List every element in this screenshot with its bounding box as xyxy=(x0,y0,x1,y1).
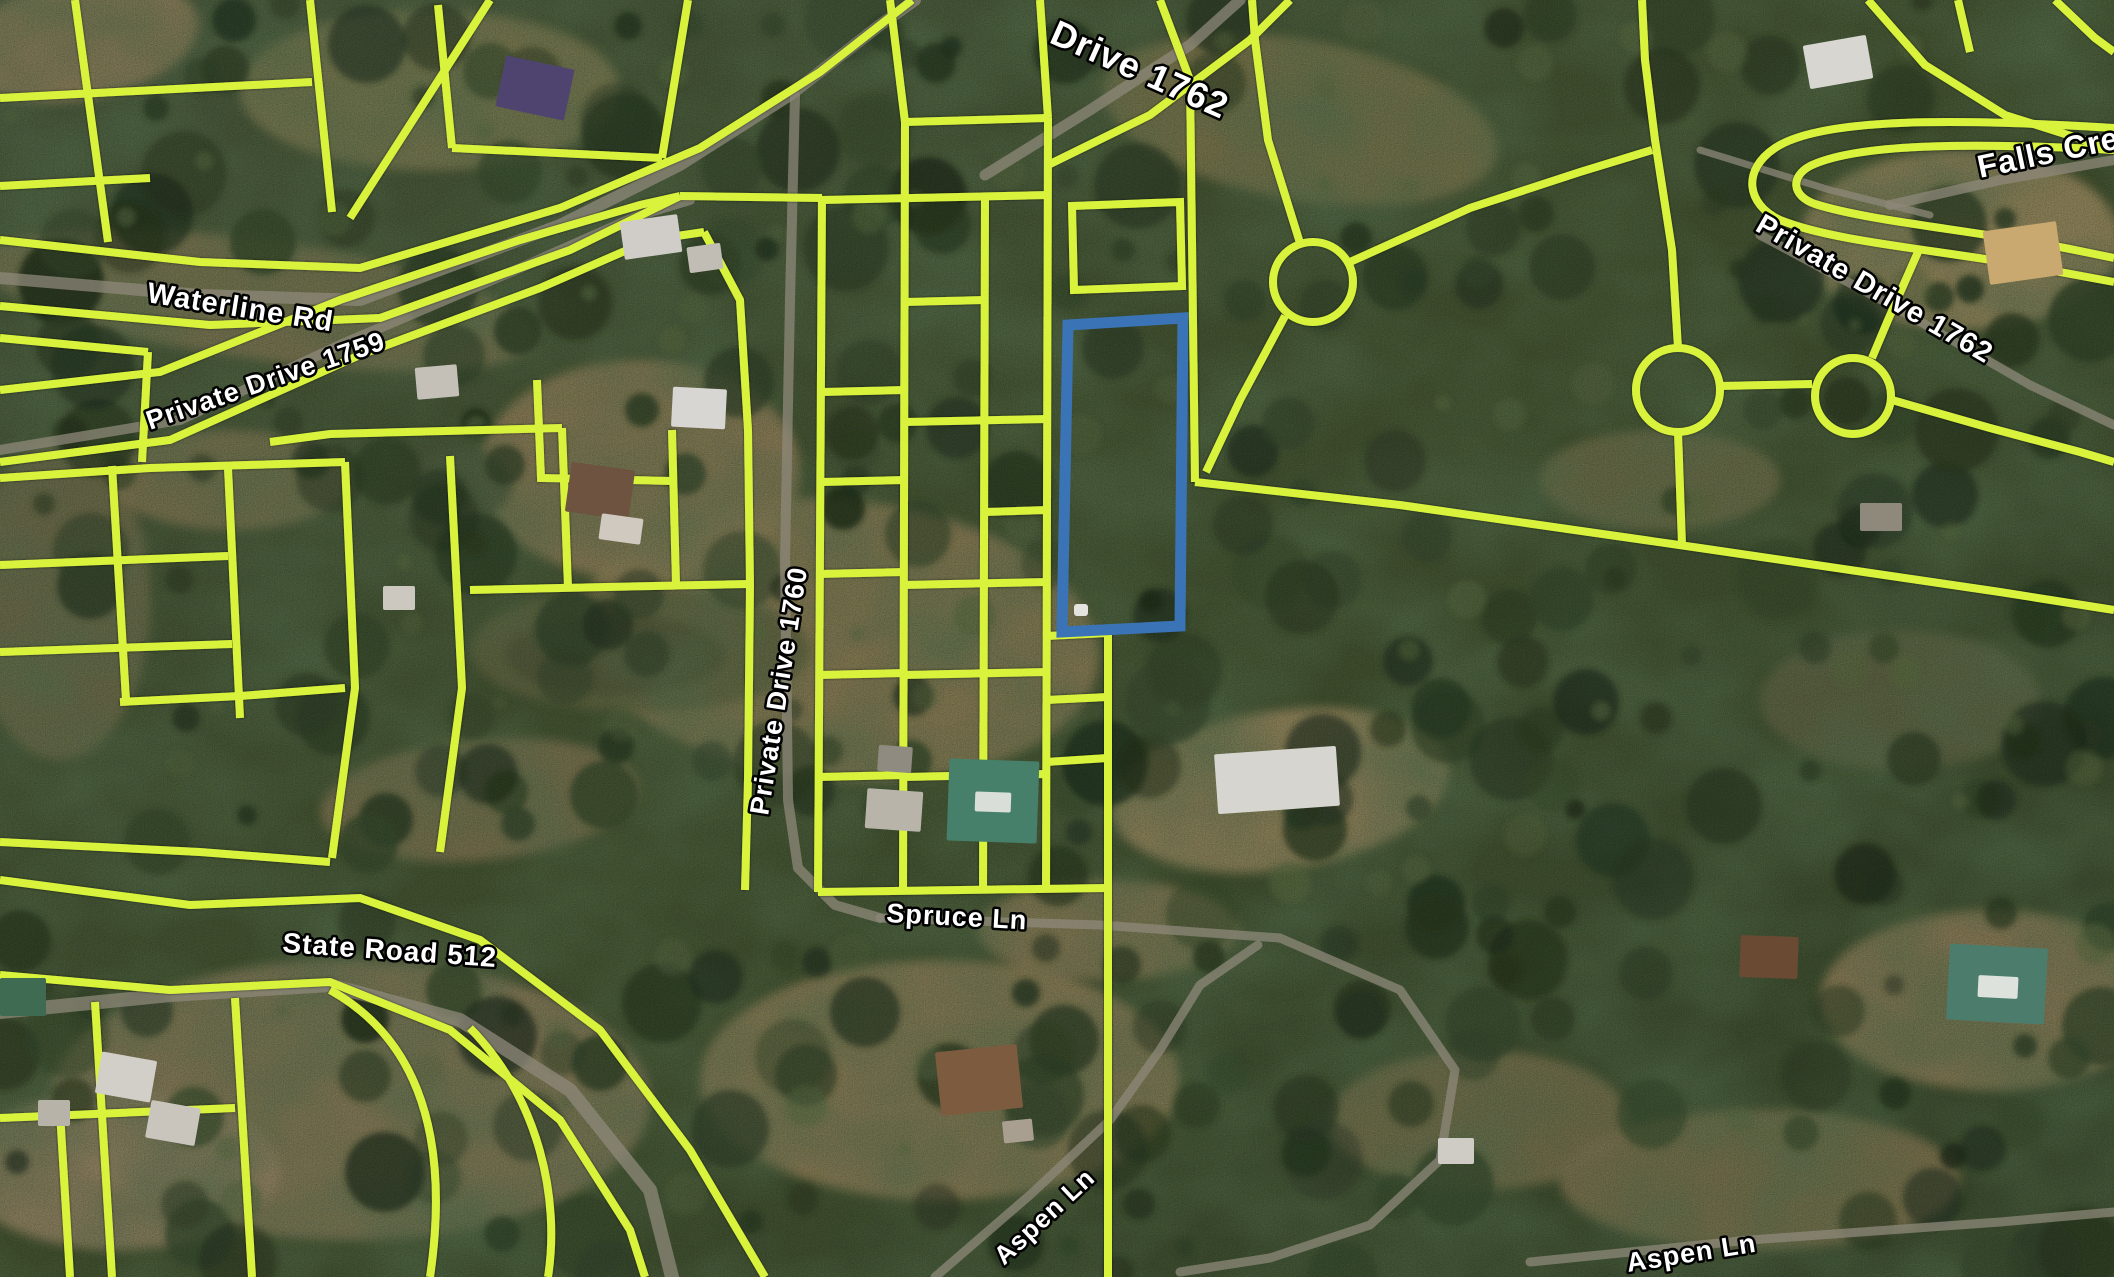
white-shed xyxy=(383,586,415,610)
white-shed xyxy=(620,214,683,260)
map-viewport[interactable]: Drive 1762 Falls Creek Private Drive 176… xyxy=(0,0,2114,1277)
grey-shed xyxy=(865,788,924,832)
parcel-line xyxy=(818,888,1108,892)
white-house xyxy=(671,387,727,430)
white-shed xyxy=(686,243,723,273)
parcel-line xyxy=(818,775,905,777)
grey-shed xyxy=(877,745,913,773)
teal-roof-trim xyxy=(975,791,1012,812)
brown-cabin xyxy=(1739,935,1798,979)
vehicle-dot xyxy=(1074,604,1088,616)
green-roof-house xyxy=(0,978,46,1016)
parcel-line xyxy=(818,673,905,675)
brown-roof-house xyxy=(565,462,635,520)
parcel-line xyxy=(905,118,1048,122)
parcel-line xyxy=(672,430,676,584)
shed xyxy=(1002,1118,1034,1143)
white-industrial-building xyxy=(1214,746,1340,814)
tan-a-frame-house xyxy=(1983,221,2064,285)
parcel-line xyxy=(1720,384,1812,386)
parcel-line xyxy=(680,196,822,198)
grey-shed xyxy=(38,1100,70,1126)
parcel-line xyxy=(818,196,822,892)
parcel-line xyxy=(822,390,905,392)
white-shed xyxy=(1438,1138,1474,1164)
parcel-line xyxy=(822,195,1048,200)
parcel-line xyxy=(822,480,905,482)
parcel-line xyxy=(1678,432,1682,545)
parcel-line xyxy=(1046,697,1108,700)
grey-building xyxy=(415,364,460,400)
parcel-line xyxy=(985,510,1048,512)
parcel-line xyxy=(1046,758,1108,762)
satellite-parcel-map: Drive 1762 Falls Creek Private Drive 176… xyxy=(0,0,2114,1277)
teal-roof-trim xyxy=(1977,975,2018,999)
parcel-line xyxy=(905,419,1048,422)
parcel-line xyxy=(818,572,905,574)
brown-roof-house xyxy=(935,1044,1023,1116)
parcel-line xyxy=(905,300,985,302)
grey-shed xyxy=(1860,503,1902,531)
parcel-line xyxy=(903,582,1048,585)
parcel-line xyxy=(903,672,1048,675)
